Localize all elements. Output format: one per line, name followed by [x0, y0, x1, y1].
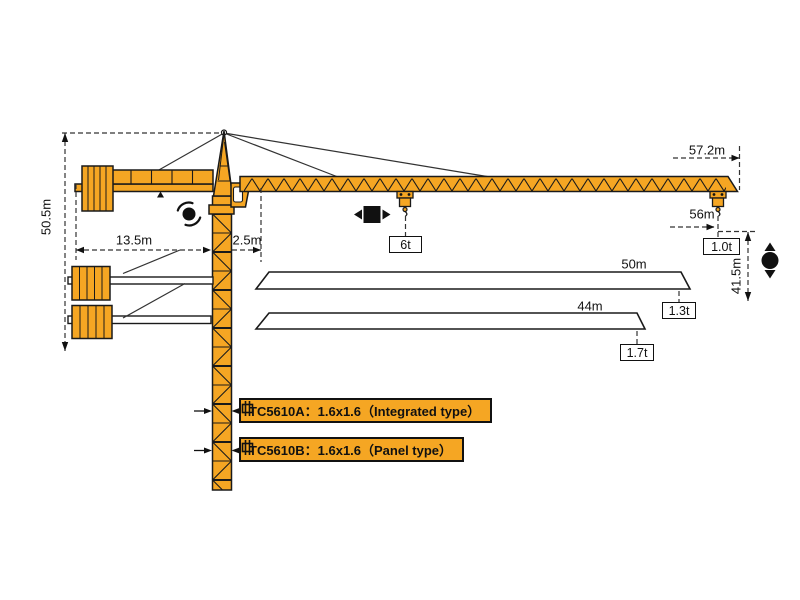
- load-box-tip-56m: 1.0t: [703, 238, 740, 255]
- jib-option-44m-bar: [256, 313, 645, 344]
- hoisting-up-down-icon: [762, 243, 779, 279]
- tower-mast: [213, 196, 232, 490]
- max-radius-label: 57.2m: [689, 143, 725, 158]
- model-a-label: TC5610A：1.6x1.6（Integrated type）: [249, 401, 480, 420]
- model-b-label: TC5610B：1.6x1.6（Panel type）: [249, 440, 452, 459]
- trolley-travel-icon: [354, 206, 391, 223]
- jib-option-44m-label: 44m: [577, 299, 602, 314]
- mast-section-icon: [241, 400, 254, 417]
- counter-jib-radius-label: 13.5m: [116, 233, 152, 248]
- tower-head: [214, 131, 233, 196]
- counterweight-block: [82, 166, 113, 211]
- slewing-rotation-icon: [178, 203, 200, 226]
- hook-height-label: 41.5m: [729, 258, 744, 294]
- load-box-tip-44m: 1.7t: [620, 344, 654, 361]
- crane-spec-diagram: 50.5m 13.5m 2.5m 57.2m 56m 41.5m 50m 44m…: [0, 0, 800, 600]
- jib-option-50m-bar: [256, 272, 690, 302]
- min-radius-label: 2.5m: [233, 233, 262, 248]
- model-box-tc5610a: TC5610A：1.6x1.6（Integrated type）: [239, 398, 492, 423]
- counterweight-config-2: [68, 306, 211, 339]
- counterweight-config-1: [68, 267, 213, 301]
- total-height-label: 50.5m: [39, 199, 54, 235]
- tip-load-radius-label: 56m: [689, 207, 714, 222]
- counter-jib-marker: [157, 192, 164, 198]
- main-jib: [240, 177, 738, 192]
- jib-option-50m-label: 50m: [621, 257, 646, 272]
- crane-artwork: [0, 0, 800, 600]
- trolley-hook-mid: [397, 192, 413, 217]
- model-box-tc5610b: TC5610B：1.6x1.6（Panel type）: [239, 437, 464, 462]
- load-leader-tip: [718, 216, 756, 238]
- dim-tip-load-radius: [670, 224, 715, 230]
- load-box-mid-jib: 6t: [389, 236, 422, 253]
- load-box-tip-50m: 1.3t: [662, 302, 696, 319]
- mast-section-icon: [241, 439, 254, 456]
- dim-hook-height: [745, 232, 751, 301]
